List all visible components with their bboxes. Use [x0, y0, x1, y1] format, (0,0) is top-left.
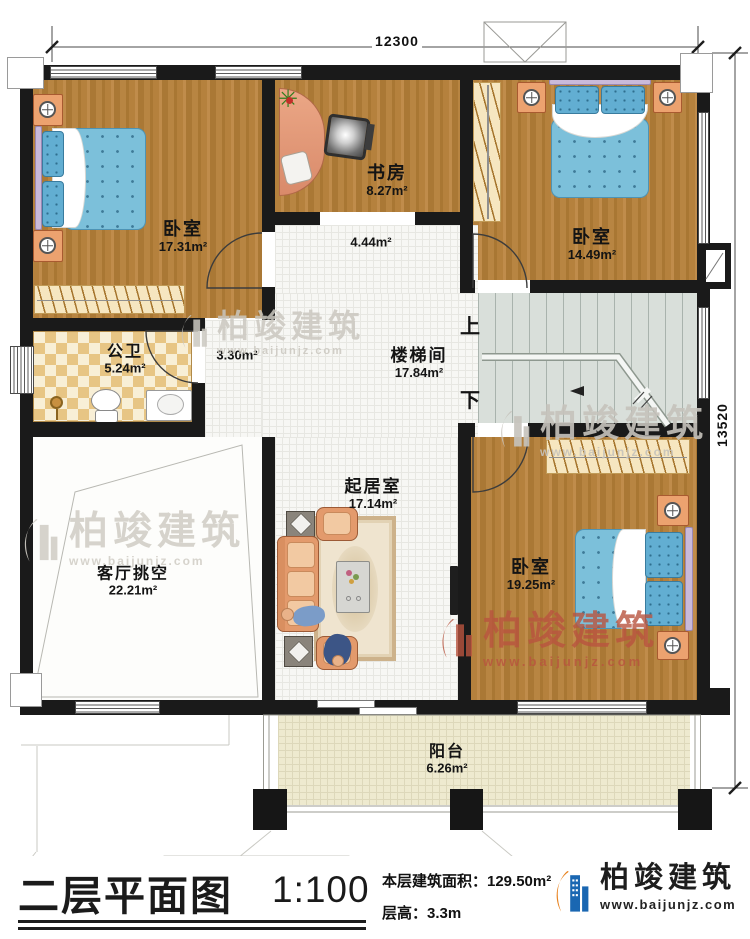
wall: [460, 65, 473, 293]
room-name: 书房: [366, 163, 407, 184]
wardrobe: [473, 82, 501, 222]
lamp-icon: [664, 502, 681, 519]
person-head: [332, 655, 344, 667]
pillow: [645, 532, 683, 578]
plant-icon: [278, 88, 298, 112]
plan-scale: 1:100: [272, 869, 370, 911]
room-area: 19.25m²: [507, 578, 555, 593]
room-area: 4.44m²: [350, 236, 391, 251]
area-label-corridor: 3.30m²: [216, 349, 257, 364]
room-name: 卧室: [159, 219, 207, 240]
room-name: 卧室: [507, 557, 555, 578]
wall: [530, 280, 710, 293]
wall: [192, 383, 205, 422]
room-area: 8.27m²: [366, 184, 407, 199]
flower-decor-icon: [346, 570, 352, 576]
room-area: 17.14m²: [345, 496, 402, 511]
floor-plan: 卧室 17.31m² 书房 8.27m² 卧室 14.49m² 4.44m² 3…: [0, 0, 750, 939]
bed-sheet: [612, 529, 646, 629]
table-knob-icon: [346, 596, 351, 601]
pillow: [42, 181, 64, 227]
room-area: 17.31m²: [159, 240, 207, 255]
room-area: 17.84m²: [391, 365, 448, 380]
bed-headboard: [35, 126, 42, 230]
brand-logo-icon: [552, 864, 594, 920]
exterior-pier: [680, 53, 713, 93]
end-table: [284, 636, 313, 667]
floor-drain-stem: [56, 409, 58, 420]
door-opening: [192, 331, 205, 383]
plan-title: 二层平面图: [18, 862, 233, 922]
room-name: 公卫: [104, 343, 145, 361]
room-name: 起居室: [345, 477, 402, 497]
floor-height-text: 层高：3.3m: [382, 902, 551, 923]
room-label-void: 客厅挑空 22.21m²: [97, 565, 169, 598]
armchair: [316, 507, 358, 541]
balcony-column: [678, 789, 712, 830]
title-block: 二层平面图 1:100 本层建筑面积：129.50m² 层高：3.3m 柏竣建筑: [0, 856, 750, 939]
room-label-bedroom-tl: 卧室 17.31m²: [159, 219, 207, 255]
room-label-study: 书房 8.27m²: [366, 163, 407, 199]
window: [698, 112, 709, 244]
wardrobe: [34, 285, 185, 314]
room-area: 22.21m²: [97, 584, 169, 599]
floor-corridor: [205, 320, 262, 437]
wall: [262, 437, 275, 700]
lamp-icon: [659, 89, 676, 106]
wall: [458, 437, 471, 700]
brand-name: 柏竣建筑: [600, 864, 736, 893]
table-knob-icon: [356, 596, 361, 601]
exterior-pier: [7, 57, 44, 89]
wall: [262, 65, 275, 232]
toilet-icon: [91, 389, 121, 412]
floor-drain-icon: [50, 396, 63, 409]
window: [698, 307, 709, 399]
room-name: 阳台: [426, 743, 467, 761]
title-underline: [18, 920, 366, 930]
wall: [20, 318, 205, 331]
lamp-icon: [39, 101, 56, 118]
floor-area-text: 本层建筑面积：129.50m²: [382, 870, 551, 891]
room-label-bedroom-tr: 卧室 14.49m²: [568, 227, 616, 263]
lamp-icon: [664, 637, 681, 654]
wall-ledge-inner: [706, 250, 725, 282]
wall: [415, 212, 460, 225]
pillow: [645, 581, 683, 626]
room-name: 卧室: [568, 227, 616, 248]
wardrobe: [546, 439, 690, 474]
room-label-stairwell: 楼梯间 17.84m²: [391, 346, 448, 380]
flower-decor-icon: [353, 574, 359, 580]
pillow: [42, 131, 64, 177]
coffee-table: [336, 561, 370, 613]
room-name: 客厅挑空: [97, 565, 169, 583]
stair-down-label: 下: [460, 384, 480, 413]
plan-info: 本层建筑面积：129.50m² 层高：3.3m: [382, 870, 551, 923]
window: [10, 346, 34, 394]
room-name: 楼梯间: [391, 346, 448, 366]
area-label-hall: 4.44m²: [350, 236, 391, 251]
window: [517, 701, 647, 714]
room-area: 6.26m²: [426, 762, 467, 777]
window: [75, 701, 160, 714]
bed-headboard: [685, 527, 693, 631]
exterior-pier: [10, 673, 42, 707]
window: [50, 66, 157, 79]
person-head: [281, 608, 294, 621]
floor-stairwell: [478, 293, 697, 423]
wall: [458, 423, 475, 437]
balcony-column: [253, 789, 287, 830]
pillow: [555, 86, 599, 114]
brand-url: www.baijunjz.com: [600, 897, 736, 912]
tv: [450, 566, 458, 615]
wall: [460, 280, 475, 293]
balcony-column: [450, 789, 483, 830]
lamp-icon: [39, 237, 56, 254]
computer-monitor-icon: [323, 113, 370, 160]
sink-basin-icon: [157, 394, 184, 415]
room-label-bathroom: 公卫 5.24m²: [104, 343, 145, 376]
dimension-right: 13520: [714, 400, 730, 450]
room-label-balcony: 阳台 6.26m²: [426, 743, 467, 776]
room-label-family: 起居室 17.14m²: [345, 477, 402, 511]
wall: [20, 422, 205, 437]
dimension-top: 12300: [372, 33, 422, 49]
end-table: [286, 511, 315, 537]
stair-up-label: 上: [460, 310, 480, 339]
sliding-door-panel: [359, 707, 417, 715]
floor-balcony: [278, 715, 690, 805]
lamp-icon: [523, 89, 540, 106]
pillow: [601, 86, 645, 114]
wall: [275, 212, 320, 225]
flower-decor-icon: [349, 579, 354, 584]
window: [215, 66, 302, 79]
brand-block: 柏竣建筑 www.baijunjz.com: [552, 864, 736, 920]
room-area: 5.24m²: [104, 362, 145, 377]
wall-pier: [697, 688, 730, 715]
room-label-bedroom-br: 卧室 19.25m²: [507, 557, 555, 593]
room-area: 3.30m²: [216, 349, 257, 364]
wall: [262, 287, 275, 320]
wall: [528, 423, 710, 437]
room-area: 14.49m²: [568, 248, 616, 263]
